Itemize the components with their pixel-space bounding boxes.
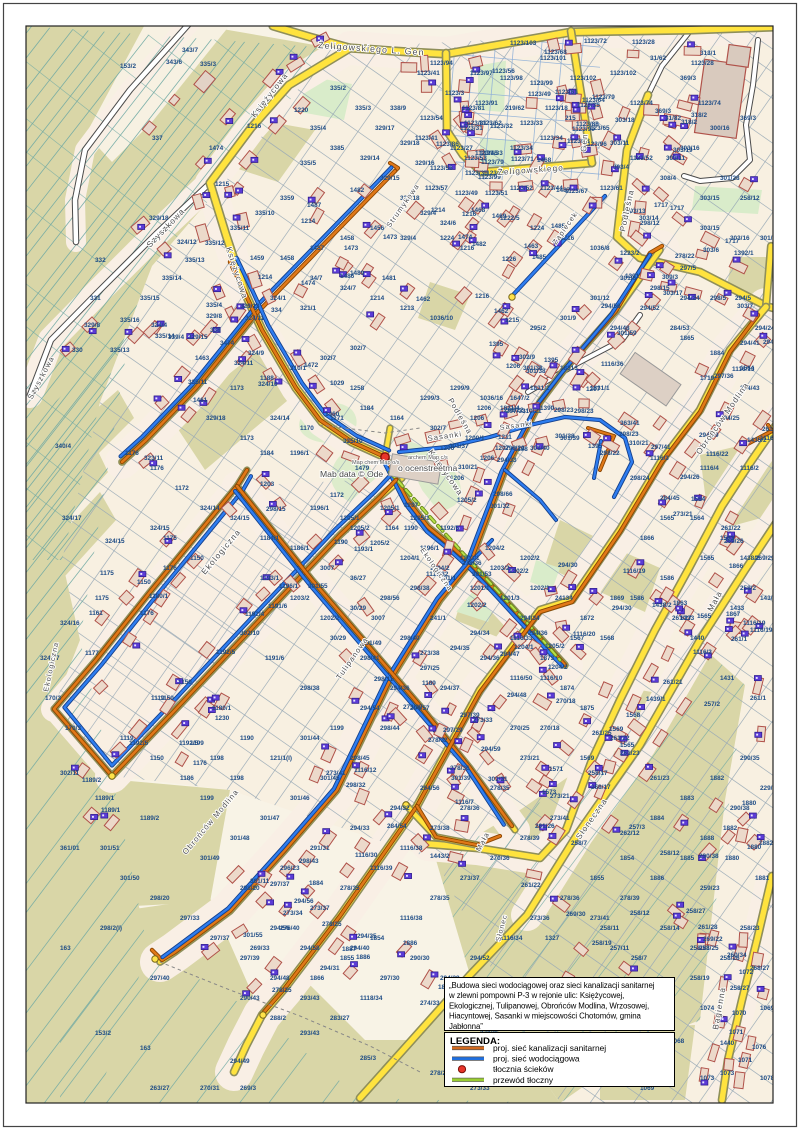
svg-text:297/40: 297/40	[150, 975, 170, 982]
svg-text:1885: 1885	[680, 855, 695, 862]
svg-text:1206: 1206	[440, 445, 455, 452]
svg-text:324/11: 324/11	[245, 315, 265, 322]
svg-text:343/7: 343/7	[182, 47, 198, 54]
svg-text:270/18: 270/18	[556, 698, 576, 705]
svg-text:1872: 1872	[580, 615, 595, 622]
svg-text:297/25: 297/25	[420, 665, 440, 672]
svg-text:1438/2: 1438/2	[652, 602, 672, 609]
svg-text:295/2: 295/2	[530, 325, 546, 332]
svg-text:269/3: 269/3	[240, 1085, 256, 1092]
svg-text:1192/4: 1192/4	[245, 611, 265, 618]
svg-text:1886: 1886	[403, 940, 418, 947]
svg-text:1258: 1258	[350, 385, 365, 392]
svg-text:1886: 1886	[650, 875, 665, 882]
svg-text:1206: 1206	[470, 415, 485, 422]
svg-text:1123/74: 1123/74	[630, 100, 653, 107]
svg-text:332: 332	[95, 257, 106, 264]
svg-text:1116/38: 1116/38	[400, 845, 423, 852]
svg-text:294/52: 294/52	[470, 955, 490, 962]
svg-text:123/65: 123/65	[590, 125, 610, 132]
svg-text:258/12: 258/12	[660, 850, 680, 857]
svg-text:301/31: 301/31	[488, 776, 508, 783]
svg-text:278/35: 278/35	[430, 895, 450, 902]
svg-text:294/30: 294/30	[558, 562, 578, 569]
svg-text:1192/5: 1192/5	[440, 525, 460, 532]
svg-text:324/15: 324/15	[105, 538, 125, 545]
svg-text:31/82: 31/82	[665, 115, 681, 122]
svg-text:1176: 1176	[163, 565, 177, 572]
svg-text:1443/2: 1443/2	[430, 853, 450, 860]
svg-text:1116/2: 1116/2	[693, 649, 712, 656]
svg-text:1184: 1184	[260, 450, 274, 457]
svg-text:1392/1: 1392/1	[734, 250, 754, 257]
svg-text:1390: 1390	[540, 405, 555, 412]
svg-text:34/7: 34/7	[310, 275, 323, 282]
svg-text:318/2: 318/2	[681, 119, 697, 126]
svg-text:1202/1: 1202/1	[530, 585, 550, 592]
svg-text:3007: 3007	[320, 565, 335, 572]
svg-text:1565: 1565	[620, 742, 635, 749]
svg-text:324/6: 324/6	[440, 220, 456, 227]
svg-text:1207: 1207	[404, 502, 419, 509]
svg-text:1123/51: 1123/51	[485, 190, 508, 197]
svg-text:278/39: 278/39	[620, 895, 640, 902]
svg-text:324/12: 324/12	[177, 239, 197, 246]
svg-text:298/38: 298/38	[300, 685, 320, 692]
svg-text:303/18: 303/18	[615, 117, 635, 124]
svg-text:261/28: 261/28	[698, 924, 718, 931]
svg-text:1116/39: 1116/39	[370, 865, 393, 872]
svg-text:303/11: 303/11	[610, 140, 630, 147]
svg-text:268/27: 268/27	[750, 965, 770, 972]
svg-text:335/3: 335/3	[355, 105, 371, 112]
svg-text:1200/1: 1200/1	[465, 435, 485, 442]
svg-text:1196/1: 1196/1	[310, 505, 330, 512]
svg-text:1461: 1461	[193, 397, 208, 404]
svg-text:278/25: 278/25	[272, 987, 292, 994]
svg-text:1395: 1395	[588, 443, 603, 450]
svg-text:1884: 1884	[309, 880, 324, 887]
svg-text:1190: 1190	[404, 525, 418, 532]
svg-text:1567: 1567	[570, 635, 585, 642]
svg-text:331: 331	[90, 295, 101, 302]
svg-text:1123/35: 1123/35	[577, 102, 600, 109]
svg-text:269/33: 269/33	[250, 945, 270, 952]
svg-text:294/33: 294/33	[497, 457, 517, 464]
svg-text:294/56: 294/56	[270, 925, 290, 932]
svg-text:1882: 1882	[759, 840, 774, 847]
svg-text:329/17: 329/17	[375, 125, 395, 132]
svg-text:296/23: 296/23	[280, 865, 300, 872]
svg-text:363/41: 363/41	[620, 420, 640, 427]
svg-text:1565: 1565	[697, 613, 712, 620]
svg-text:1486: 1486	[340, 273, 355, 280]
svg-text:1123/44: 1123/44	[540, 185, 563, 192]
svg-text:273/21: 273/21	[520, 755, 540, 762]
svg-text:219/62: 219/62	[505, 105, 525, 112]
svg-text:3474: 3474	[220, 340, 235, 347]
svg-text:298/66: 298/66	[493, 491, 513, 498]
svg-text:284/45: 284/45	[660, 495, 680, 502]
svg-text:1327: 1327	[545, 935, 560, 942]
svg-text:294/58: 294/58	[300, 945, 320, 952]
svg-text:1563: 1563	[720, 535, 735, 542]
svg-text:273/37: 273/37	[460, 875, 480, 882]
svg-text:284/53: 284/53	[670, 325, 690, 332]
svg-text:294/37: 294/37	[440, 685, 460, 692]
svg-text:290/30: 290/30	[410, 955, 430, 962]
svg-text:301/46: 301/46	[290, 795, 310, 802]
svg-text:1123/49: 1123/49	[455, 190, 478, 197]
svg-text:303/16: 303/16	[730, 235, 750, 242]
svg-text:301/55: 301/55	[308, 583, 328, 590]
svg-text:294/48: 294/48	[270, 975, 290, 982]
svg-text:335/14: 335/14	[162, 275, 182, 282]
svg-text:1487: 1487	[307, 202, 322, 209]
svg-text:„Budowa sieci wodociągowej ora: „Budowa sieci wodociągowej oraz sieci ka…	[449, 981, 655, 990]
svg-text:285/3: 285/3	[360, 1055, 376, 1062]
svg-text:1191/6: 1191/6	[268, 603, 288, 610]
svg-text:258/27: 258/27	[730, 985, 750, 992]
svg-text:1438/2: 1438/2	[740, 555, 760, 562]
svg-text:1215: 1215	[215, 181, 230, 188]
svg-text:1036/10: 1036/10	[430, 315, 454, 322]
svg-text:298/38: 298/38	[410, 585, 430, 592]
svg-text:298/23: 298/23	[574, 408, 594, 415]
svg-text:1869: 1869	[610, 595, 625, 602]
svg-text:1189/1: 1189/1	[95, 795, 115, 802]
svg-text:1116/3: 1116/3	[650, 455, 669, 462]
svg-text:294/40: 294/40	[350, 945, 370, 952]
svg-text:294/30: 294/30	[612, 605, 632, 612]
svg-text:1123/71: 1123/71	[511, 156, 534, 163]
svg-text:1866: 1866	[310, 975, 325, 982]
svg-text:1462: 1462	[416, 296, 431, 303]
svg-text:1204/1: 1204/1	[400, 555, 420, 562]
svg-text:1395: 1395	[489, 341, 504, 348]
svg-text:1196/1: 1196/1	[279, 583, 299, 590]
svg-text:298/23: 298/23	[554, 407, 574, 414]
svg-text:1468: 1468	[537, 157, 552, 164]
svg-text:1172: 1172	[175, 485, 189, 492]
svg-text:1886: 1886	[356, 954, 371, 961]
svg-text:258/7: 258/7	[631, 955, 647, 962]
svg-text:36/27: 36/27	[350, 575, 366, 582]
svg-text:1206: 1206	[480, 455, 495, 462]
svg-text:1036/8: 1036/8	[590, 245, 610, 252]
svg-text:w zlewni pompowni P-3 w rejoni: w zlewni pompowni P-3 w rejonie ulic: Ks…	[448, 991, 624, 1000]
svg-text:298/20: 298/20	[240, 885, 260, 892]
svg-text:298/45: 298/45	[350, 755, 370, 762]
svg-text:330: 330	[72, 347, 83, 354]
svg-text:1076: 1076	[752, 1044, 767, 1051]
svg-text:294/26: 294/26	[680, 474, 700, 481]
svg-text:1831/2: 1831/2	[530, 385, 550, 392]
svg-text:3007: 3007	[371, 615, 386, 622]
svg-text:1855: 1855	[590, 875, 605, 882]
svg-text:1882: 1882	[723, 825, 738, 832]
svg-text:324/7: 324/7	[340, 285, 356, 292]
svg-text:Jabłonna”: Jabłonna”	[449, 1022, 483, 1031]
svg-text:30/29: 30/29	[330, 635, 346, 642]
svg-text:301/55: 301/55	[243, 932, 263, 939]
svg-text:298/2(I): 298/2(I)	[100, 925, 122, 932]
svg-text:258/19: 258/19	[690, 975, 710, 982]
svg-text:1473: 1473	[383, 234, 398, 241]
svg-text:1462: 1462	[494, 308, 509, 315]
svg-text:302/9: 302/9	[519, 354, 535, 361]
svg-text:301/28: 301/28	[720, 175, 740, 182]
svg-text:proj. sieć kanalizacji sanitar: proj. sieć kanalizacji sanitarnej	[493, 1043, 606, 1053]
svg-text:294/52: 294/52	[640, 305, 660, 312]
svg-text:1888: 1888	[700, 835, 715, 842]
svg-text:297/36: 297/36	[714, 373, 734, 380]
svg-text:1123/56: 1123/56	[492, 68, 515, 75]
svg-text:301/47: 301/47	[260, 815, 280, 822]
svg-text:1204/2: 1204/2	[485, 545, 505, 552]
svg-text:1440: 1440	[690, 635, 705, 642]
svg-text:258/2: 258/2	[740, 585, 756, 592]
svg-text:278/36: 278/36	[460, 805, 480, 812]
svg-text:1569: 1569	[580, 755, 595, 762]
svg-text:301/32: 301/32	[490, 503, 510, 510]
svg-text:294/56: 294/56	[420, 785, 440, 792]
svg-text:241/1: 241/1	[430, 615, 446, 622]
svg-text:1173: 1173	[230, 385, 244, 392]
svg-text:302/7: 302/7	[320, 355, 336, 362]
svg-text:1831/4: 1831/4	[500, 405, 520, 412]
svg-text:297/30: 297/30	[380, 975, 400, 982]
svg-text:273/38: 273/38	[430, 825, 450, 832]
svg-text:1116/19: 1116/19	[743, 620, 766, 627]
svg-text:329/14: 329/14	[360, 155, 380, 162]
svg-text:278/36: 278/36	[560, 895, 580, 902]
svg-text:284/47: 284/47	[500, 651, 520, 658]
svg-text:1205/2: 1205/2	[457, 497, 477, 504]
svg-text:278/25: 278/25	[322, 921, 342, 928]
svg-text:258/23: 258/23	[690, 945, 710, 952]
svg-text:1568: 1568	[626, 712, 641, 719]
svg-text:1164: 1164	[390, 415, 404, 422]
svg-text:1123/61: 1123/61	[555, 89, 578, 96]
svg-text:1150: 1150	[190, 555, 204, 562]
svg-text:1880: 1880	[725, 855, 740, 862]
svg-text:338: 338	[210, 327, 221, 334]
svg-text:1123/91: 1123/91	[475, 100, 498, 107]
svg-text:1123/99: 1123/99	[530, 80, 553, 87]
svg-text:324/9: 324/9	[248, 350, 264, 357]
svg-text:297/39: 297/39	[240, 955, 260, 962]
svg-text:1203/1: 1203/1	[460, 555, 480, 562]
svg-text:297/37: 297/37	[210, 935, 230, 942]
svg-text:1205/2: 1205/2	[370, 540, 390, 547]
svg-text:301/45: 301/45	[320, 775, 340, 782]
svg-text:1123/52: 1123/52	[630, 155, 653, 162]
svg-text:1123/28: 1123/28	[632, 39, 655, 46]
svg-text:1865: 1865	[680, 335, 695, 342]
svg-text:1123/94: 1123/94	[430, 60, 453, 67]
svg-text:o ocenstreetma: o ocenstreetma	[398, 463, 457, 473]
svg-text:1196/1: 1196/1	[290, 450, 310, 457]
svg-text:Hiacyntowej, Sasanki w miejsco: Hiacyntowej, Sasanki w miejscowości Chot…	[449, 1012, 642, 1021]
svg-text:298/40: 298/40	[400, 635, 420, 642]
svg-text:294/35: 294/35	[450, 645, 470, 652]
svg-text:308/4: 308/4	[660, 175, 676, 182]
svg-text:Gen: Gen	[579, 133, 590, 152]
svg-text:1123/34: 1123/34	[510, 145, 533, 152]
svg-text:1192/5: 1192/5	[216, 649, 236, 656]
svg-text:1123/102: 1123/102	[570, 75, 597, 82]
svg-text:298/43: 298/43	[299, 858, 319, 865]
svg-text:298/32: 298/32	[346, 782, 366, 789]
svg-text:3359: 3359	[280, 195, 295, 202]
svg-text:278/36: 278/36	[450, 765, 470, 772]
svg-text:1463: 1463	[195, 355, 210, 362]
svg-text:1216: 1216	[475, 293, 490, 300]
svg-text:294/49: 294/49	[230, 1058, 250, 1065]
svg-text:302/10: 302/10	[240, 630, 260, 637]
svg-text:1198: 1198	[210, 755, 224, 762]
svg-text:1073: 1073	[720, 1070, 735, 1077]
svg-text:261/23: 261/23	[650, 775, 670, 782]
svg-text:1222/5: 1222/5	[500, 215, 520, 222]
svg-text:1440: 1440	[720, 1040, 735, 1047]
svg-text:324/4: 324/4	[151, 322, 167, 329]
svg-text:1202/2: 1202/2	[467, 602, 487, 609]
svg-text:258/23: 258/23	[740, 925, 760, 932]
svg-text:1206: 1206	[506, 363, 521, 370]
svg-text:1564: 1564	[690, 515, 705, 522]
svg-text:361/01: 361/01	[60, 845, 80, 852]
svg-text:329/15: 329/15	[380, 175, 400, 182]
svg-text:1472: 1472	[304, 362, 319, 369]
svg-text:258/27: 258/27	[686, 908, 706, 915]
svg-text:1176: 1176	[140, 610, 154, 617]
svg-text:215: 215	[565, 115, 576, 122]
svg-text:335/4: 335/4	[310, 125, 326, 132]
svg-text:1116/30: 1116/30	[355, 852, 378, 859]
svg-text:31/62: 31/62	[650, 55, 666, 62]
svg-text:1884: 1884	[650, 815, 665, 822]
svg-text:294/59: 294/59	[481, 746, 501, 753]
svg-text:170/3: 170/3	[45, 695, 61, 702]
svg-text:343/6: 343/6	[166, 59, 182, 66]
svg-text:1481: 1481	[382, 275, 397, 282]
svg-text:121/1(I): 121/1(I)	[270, 755, 292, 762]
svg-text:261/1: 261/1	[750, 695, 766, 702]
svg-text:294/54: 294/54	[360, 705, 380, 712]
svg-text:1565: 1565	[660, 515, 675, 522]
svg-text:1123/74: 1123/74	[698, 100, 721, 107]
svg-text:270/18: 270/18	[540, 725, 560, 732]
svg-text:1123/54: 1123/54	[420, 115, 443, 122]
svg-text:294/56: 294/56	[294, 898, 314, 905]
svg-text:294/32: 294/32	[390, 805, 410, 812]
svg-text:1458: 1458	[340, 235, 355, 242]
svg-text:1211: 1211	[498, 434, 512, 441]
svg-text:298/5: 298/5	[710, 295, 726, 302]
svg-text:329/8: 329/8	[84, 322, 100, 329]
svg-text:259/23: 259/23	[700, 885, 720, 892]
svg-text:1171: 1171	[330, 415, 344, 422]
svg-text:1214: 1214	[370, 295, 385, 302]
svg-text:1569: 1569	[609, 726, 624, 733]
svg-text:284/54: 284/54	[387, 823, 407, 830]
svg-text:1193/1: 1193/1	[260, 575, 280, 582]
svg-text:1177: 1177	[85, 650, 99, 657]
svg-text:163: 163	[60, 945, 71, 952]
svg-text:323/11: 323/11	[144, 455, 164, 462]
svg-text:294/41: 294/41	[740, 340, 760, 347]
svg-text:301/9: 301/9	[560, 315, 576, 322]
svg-text:1123/30: 1123/30	[465, 170, 488, 177]
svg-text:335/13: 335/13	[110, 347, 130, 354]
svg-text:1116/10: 1116/10	[540, 675, 563, 682]
svg-text:1190: 1190	[240, 735, 254, 742]
svg-text:283/27: 283/27	[330, 1015, 350, 1022]
svg-text:1468: 1468	[471, 207, 486, 214]
svg-text:1191/6: 1191/6	[265, 655, 285, 662]
svg-text:298/20: 298/20	[150, 895, 170, 902]
svg-text:298/23: 298/23	[619, 431, 639, 438]
svg-text:1029: 1029	[330, 380, 345, 387]
svg-text:298/15: 298/15	[266, 506, 286, 513]
svg-text:303/15: 303/15	[700, 225, 720, 232]
svg-text:300/16: 300/16	[710, 125, 730, 132]
svg-text:301/50: 301/50	[120, 875, 140, 882]
svg-text:1186/1: 1186/1	[290, 545, 310, 552]
svg-text:324/15: 324/15	[150, 525, 170, 532]
svg-text:1205/2: 1205/2	[350, 525, 370, 532]
svg-text:1205/1: 1205/1	[410, 515, 430, 522]
svg-text:294/5: 294/5	[735, 295, 751, 302]
svg-text:301/11: 301/11	[250, 878, 270, 885]
svg-text:1203/2: 1203/2	[490, 565, 510, 572]
svg-text:321/1: 321/1	[300, 305, 316, 312]
svg-text:273/37: 273/37	[310, 905, 330, 912]
svg-text:261/26: 261/26	[535, 823, 555, 830]
svg-text:1116/22: 1116/22	[706, 451, 729, 458]
svg-text:1717: 1717	[654, 202, 669, 209]
svg-text:1123/49: 1123/49	[528, 91, 551, 98]
svg-text:1457: 1457	[310, 245, 325, 252]
svg-text:1568: 1568	[600, 635, 615, 642]
svg-text:294/24: 294/24	[680, 295, 700, 302]
svg-text:1719: 1719	[700, 375, 715, 382]
svg-text:1175: 1175	[100, 570, 114, 577]
svg-text:1866: 1866	[640, 535, 655, 542]
svg-text:258/17: 258/17	[588, 770, 608, 777]
svg-text:313/1: 313/1	[700, 50, 716, 57]
svg-text:24134: 24134	[555, 595, 573, 602]
svg-text:1123/72: 1123/72	[584, 38, 607, 45]
svg-text:1564: 1564	[691, 496, 706, 503]
svg-text:302/11: 302/11	[60, 770, 80, 777]
svg-text:1395: 1395	[544, 357, 559, 364]
svg-text:1224: 1224	[440, 235, 455, 242]
svg-text:261/1: 261/1	[731, 636, 747, 643]
svg-text:294/36: 294/36	[480, 655, 500, 662]
svg-text:tłocznia ścieków: tłocznia ścieków	[493, 1064, 554, 1074]
svg-text:303/7: 303/7	[737, 303, 753, 310]
svg-text:1176: 1176	[150, 465, 164, 472]
svg-text:1123/103: 1123/103	[510, 40, 537, 47]
svg-text:1564: 1564	[740, 365, 755, 372]
svg-text:1186: 1186	[180, 775, 194, 782]
svg-text:1226: 1226	[502, 256, 517, 263]
svg-text:1123/97: 1123/97	[470, 70, 493, 77]
svg-text:297/33: 297/33	[180, 915, 200, 922]
